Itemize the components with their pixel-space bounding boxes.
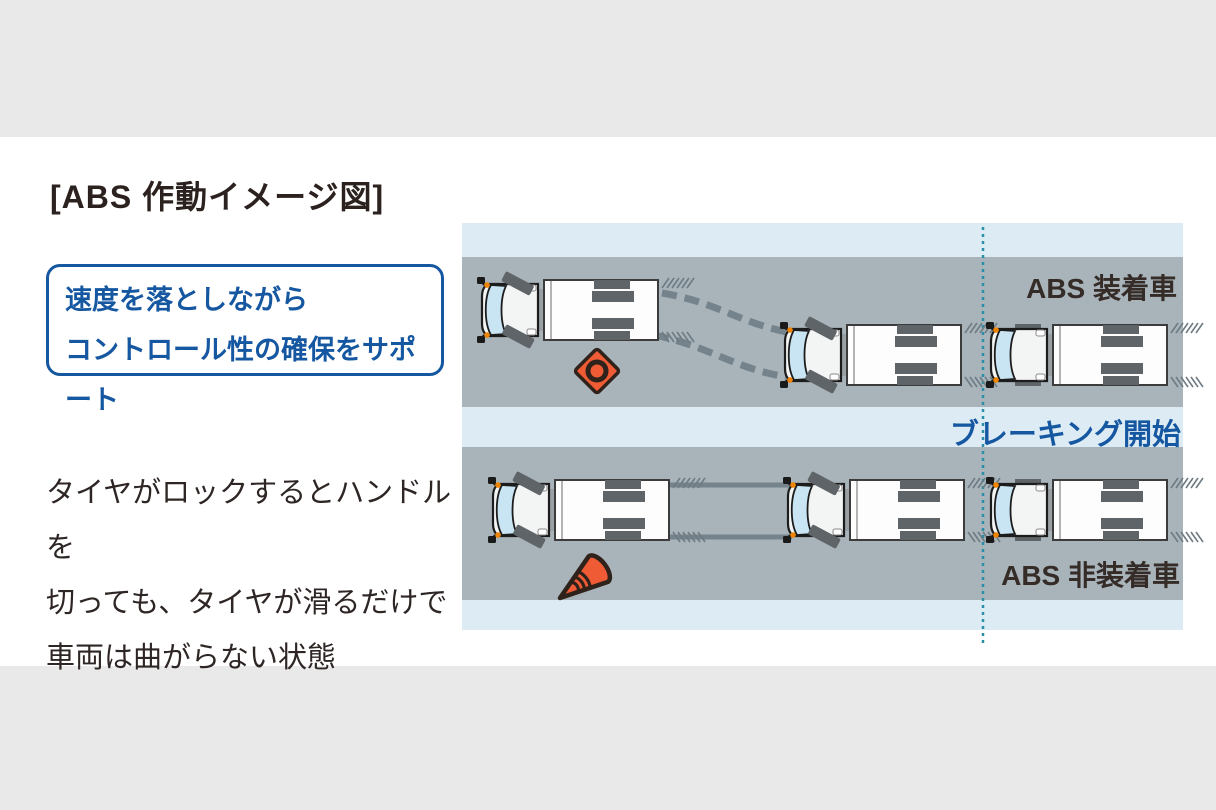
abs-diagram-panel: ABS 装着車 ブレーキング開始 ABS 非装着車 (462, 223, 1183, 630)
truck-abs-steering (780, 316, 997, 394)
truck-no-abs-before-braking (986, 477, 1203, 543)
no-abs-skid-marks (670, 485, 792, 537)
page-title: [ABS 作動イメージ図] (50, 172, 384, 218)
top-margin-band (0, 0, 1216, 137)
bottom-margin-band (0, 666, 1216, 810)
abs-benefit-callout: 速度を落としながら コントロール性の確保をサポート (46, 264, 444, 376)
no-abs-vehicle-label: ABS 非装着車 (1001, 554, 1180, 594)
callout-line-1: 速度を落としながら (65, 275, 441, 325)
abs-vehicle-label: ABS 装着車 (1026, 267, 1177, 307)
truck-abs-before-braking (986, 322, 1203, 388)
description-line-2: 切っても、タイヤが滑るだけで (46, 576, 476, 631)
fallen-traffic-cone-icon (550, 552, 614, 611)
traffic-cone-top-view-icon (574, 348, 619, 393)
description-line-3: 車両は曲がらない状態 (46, 631, 476, 686)
no-abs-description: タイヤがロックするとハンドルを 切っても、タイヤが滑るだけで 車両は曲がらない状… (46, 466, 476, 686)
callout-line-2: コントロール性の確保をサポート (65, 325, 441, 425)
truck-no-abs-locked (783, 471, 1000, 549)
braking-start-label: ブレーキング開始 (950, 411, 1181, 453)
description-line-1: タイヤがロックするとハンドルを (46, 466, 476, 576)
